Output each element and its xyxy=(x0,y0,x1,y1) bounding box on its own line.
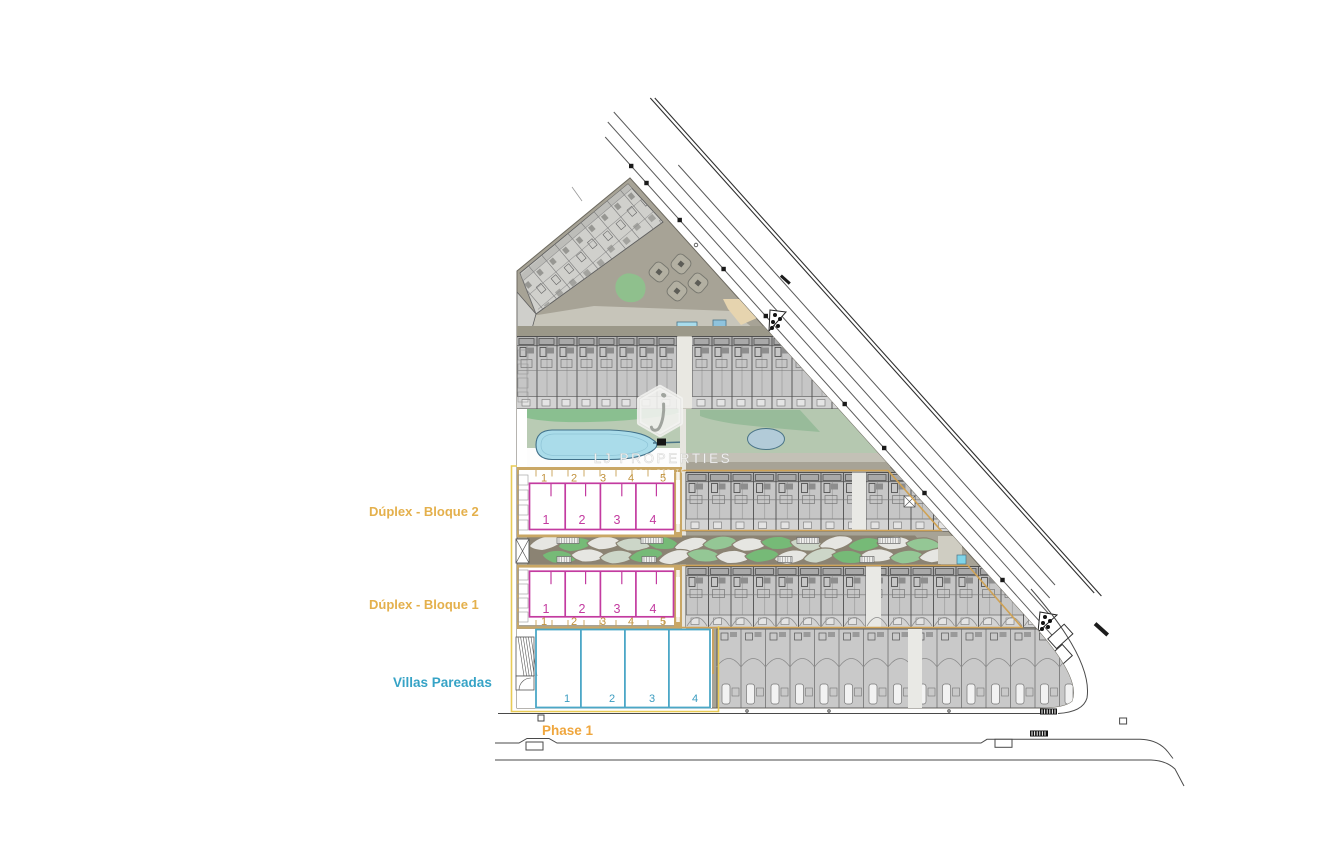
svg-text:3: 3 xyxy=(649,693,655,705)
svg-text:3: 3 xyxy=(600,616,606,628)
svg-text:2: 2 xyxy=(571,616,577,628)
svg-text:Villas Pareadas: Villas Pareadas xyxy=(393,675,492,690)
svg-text:2: 2 xyxy=(609,693,615,705)
svg-text:Phase 1: Phase 1 xyxy=(542,723,594,738)
svg-text:4: 4 xyxy=(628,473,634,485)
svg-text:Dúplex - Bloque 2: Dúplex - Bloque 2 xyxy=(369,504,479,519)
svg-text:5: 5 xyxy=(660,616,666,628)
svg-text:4: 4 xyxy=(628,616,634,628)
svg-text:4: 4 xyxy=(650,513,657,527)
svg-text:1: 1 xyxy=(543,602,550,616)
svg-text:1: 1 xyxy=(541,616,547,628)
svg-text:2: 2 xyxy=(579,602,586,616)
svg-text:3: 3 xyxy=(614,513,621,527)
svg-text:1: 1 xyxy=(541,473,547,485)
svg-text:1: 1 xyxy=(564,693,570,705)
svg-text:1: 1 xyxy=(543,513,550,527)
svg-text:5: 5 xyxy=(660,473,666,485)
svg-text:Dúplex - Bloque 1: Dúplex - Bloque 1 xyxy=(369,597,479,612)
svg-text:REAL ESTATE: REAL ESTATE xyxy=(634,469,686,474)
svg-text:LJ PROPERTIES: LJ PROPERTIES xyxy=(594,451,733,466)
svg-text:3: 3 xyxy=(614,602,621,616)
svg-text:2: 2 xyxy=(571,473,577,485)
svg-text:2: 2 xyxy=(579,513,586,527)
svg-text:4: 4 xyxy=(650,602,657,616)
svg-text:3: 3 xyxy=(600,473,606,485)
svg-text:4: 4 xyxy=(692,693,698,705)
